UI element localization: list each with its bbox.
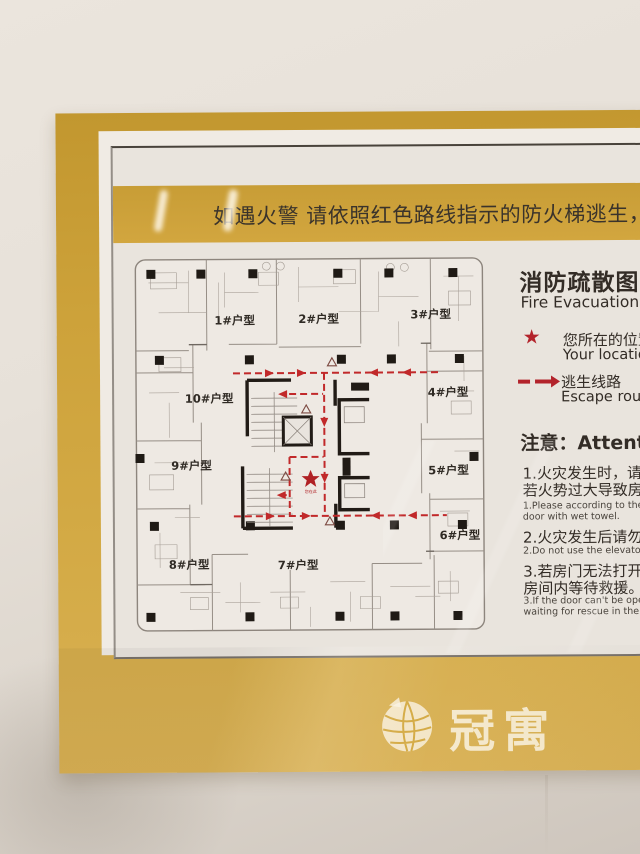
unit-label: 4#户型 <box>428 385 469 399</box>
wall-photo-scene: 如遇火警 请依照红色路线指示的防火梯逃生，切勿 <box>0 0 640 854</box>
unit-label: 7#户型 <box>278 558 319 572</box>
warning-banner: 如遇火警 请依照红色路线指示的防火梯逃生，切勿 <box>113 183 640 243</box>
instruction-1-en-line2: door with wet towel. <box>523 511 620 523</box>
instruction-3-en-line1: 3.If the door can't be opened,ple <box>523 595 640 607</box>
brand-lockup: 冠寓 <box>377 688 640 760</box>
arrow-head <box>551 375 560 387</box>
wall-seam <box>545 775 548 854</box>
unit-label: 1#户型 <box>214 313 255 327</box>
instruction-2-en: 2.Do not use the elevator after the <box>523 545 640 557</box>
brand-name: 冠寓 <box>449 694 557 761</box>
unit-label: 6#户型 <box>440 528 481 542</box>
attention-title: 注意：Attention <box>520 428 640 456</box>
legend-route-en: Escape route <box>561 389 640 406</box>
glass-panel: 如遇火警 请依照红色路线指示的防火梯逃生，切勿 <box>111 143 640 659</box>
unit-label: 3#户型 <box>410 307 451 321</box>
instruction-1-cn-line2: 若火势过大导致房门手 <box>523 479 640 501</box>
legend-location-en: Your location <box>563 347 640 364</box>
evacuation-sign-board: 如遇火警 请依照红色路线指示的防火梯逃生，切勿 <box>55 110 640 774</box>
unit-label: 10#户型 <box>185 391 234 405</box>
dashed-arrow-icon <box>518 376 562 386</box>
instruction-1-en-line1: 1.Please according to the escape <box>523 500 640 512</box>
panel-title-en: Fire Evacuation <box>521 293 640 312</box>
floor-plan: 您在此 1#户型 2#户型 3#户型 4#户型 5#户型 6#户型 7#户型 8… <box>128 251 490 638</box>
star-icon: ★ <box>523 327 541 347</box>
leaf-globe-logo-icon <box>377 695 435 753</box>
instruction-3-en-line2: waiting for rescue in the room. <box>523 606 640 618</box>
unit-label: 9#户型 <box>171 459 212 473</box>
you-are-here-label: 您在此 <box>305 488 317 494</box>
unit-label: 5#户型 <box>428 463 469 477</box>
arrow-dash <box>518 380 530 384</box>
unit-label: 8#户型 <box>169 558 210 572</box>
unit-label: 2#户型 <box>298 312 339 326</box>
warning-banner-text: 如遇火警 请依照红色路线指示的防火梯逃生，切勿 <box>213 198 640 231</box>
